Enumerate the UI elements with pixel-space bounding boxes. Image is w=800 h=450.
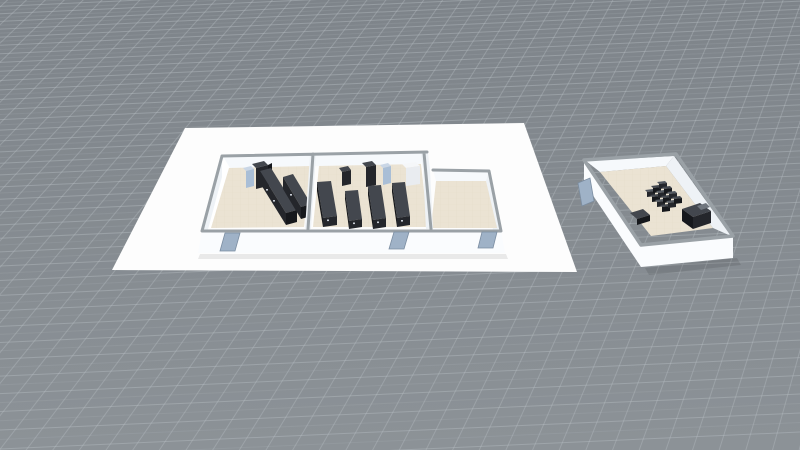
viewport-3d[interactable] [0, 0, 800, 450]
front-wall-exterior [198, 231, 505, 253]
room-right-floor [431, 181, 497, 228]
building-shadow [198, 254, 508, 259]
scene-canvas[interactable] [0, 0, 800, 450]
